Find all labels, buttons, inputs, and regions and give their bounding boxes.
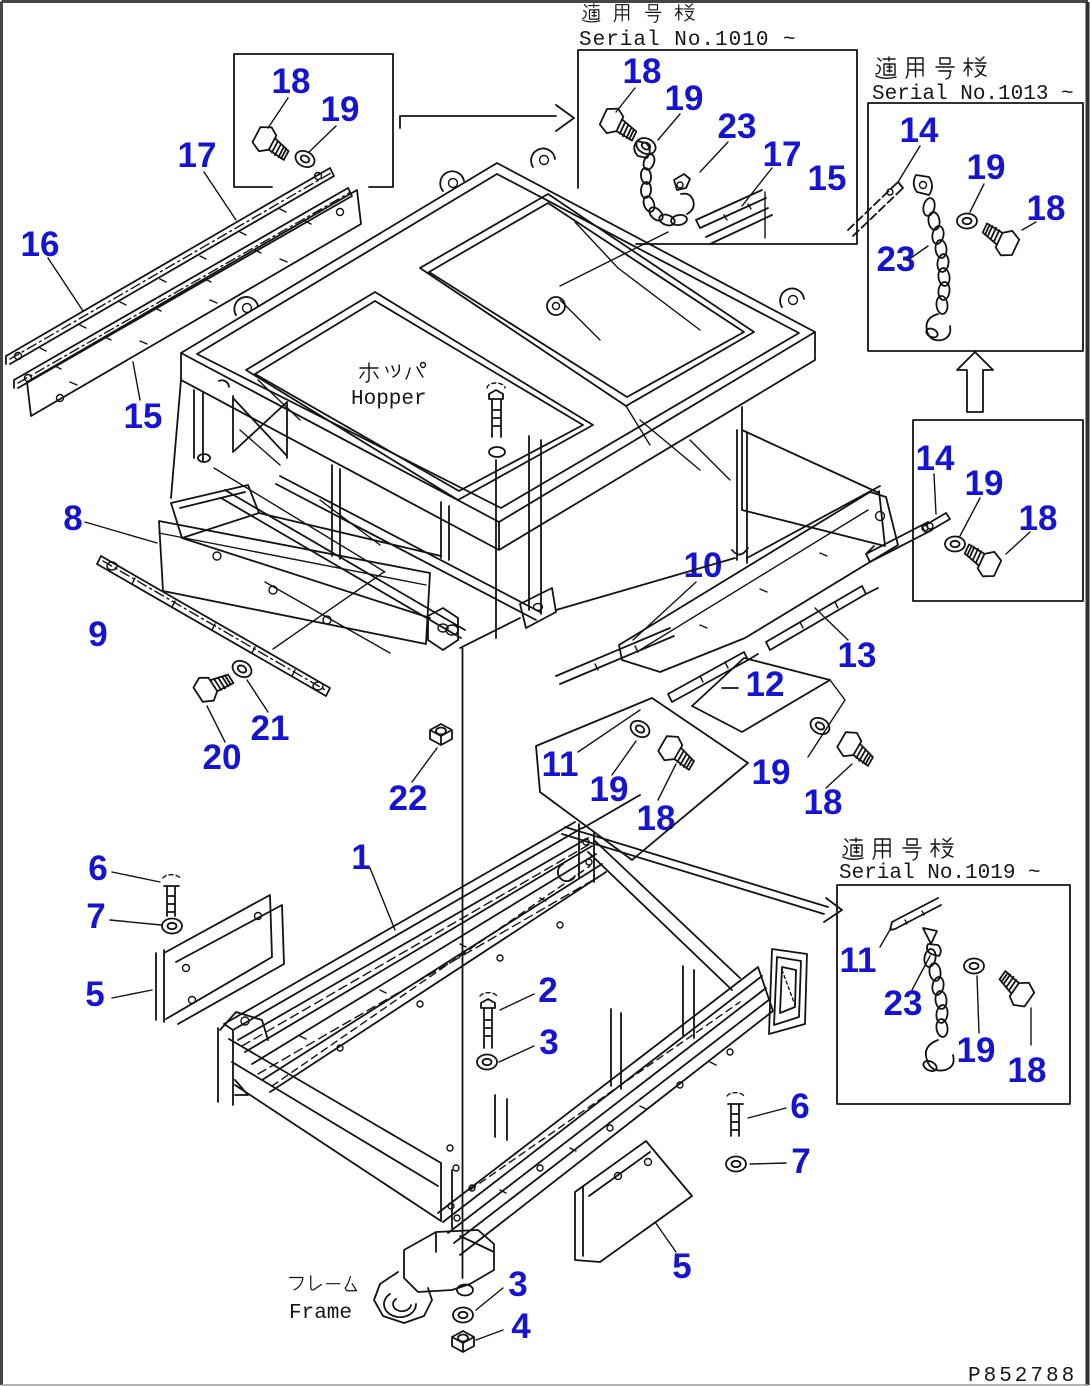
svg-text:16: 16 xyxy=(21,225,60,264)
svg-text:18: 18 xyxy=(804,783,843,822)
svg-text:22: 22 xyxy=(389,779,428,818)
svg-text:7: 7 xyxy=(791,1142,810,1181)
svg-text:14: 14 xyxy=(900,111,939,150)
svg-text:19: 19 xyxy=(665,79,704,118)
svg-text:4: 4 xyxy=(511,1307,531,1346)
svg-text:18: 18 xyxy=(272,62,311,101)
svg-text:17: 17 xyxy=(763,135,802,174)
svg-text:15: 15 xyxy=(808,159,847,198)
svg-text:12: 12 xyxy=(746,665,785,704)
svg-text:5: 5 xyxy=(672,1247,691,1286)
svg-text:6: 6 xyxy=(88,849,107,888)
svg-text:Frame: Frame xyxy=(289,1302,352,1325)
svg-text:19: 19 xyxy=(965,464,1004,503)
svg-text:18: 18 xyxy=(1008,1051,1047,1090)
svg-text:3: 3 xyxy=(539,1023,558,1062)
svg-text:19: 19 xyxy=(957,1031,996,1070)
svg-text:19: 19 xyxy=(967,148,1006,187)
svg-text:17: 17 xyxy=(178,136,217,175)
svg-text:21: 21 xyxy=(251,709,290,748)
svg-text:19: 19 xyxy=(752,753,791,792)
svg-text:2: 2 xyxy=(538,971,557,1010)
svg-text:18: 18 xyxy=(637,799,676,838)
svg-text:20: 20 xyxy=(203,738,242,777)
svg-text:23: 23 xyxy=(718,107,757,146)
svg-text:18: 18 xyxy=(623,52,662,91)
svg-text:11: 11 xyxy=(542,745,579,784)
svg-text:18: 18 xyxy=(1027,189,1066,228)
svg-text:1: 1 xyxy=(351,838,370,877)
svg-text:14: 14 xyxy=(916,439,955,478)
svg-text:7: 7 xyxy=(86,897,105,936)
svg-text:11: 11 xyxy=(840,941,877,980)
svg-text:19: 19 xyxy=(321,90,360,129)
svg-text:9: 9 xyxy=(88,615,107,654)
svg-text:23: 23 xyxy=(884,984,923,1023)
svg-text:5: 5 xyxy=(85,975,104,1014)
svg-text:3: 3 xyxy=(508,1265,527,1304)
svg-text:P852788: P852788 xyxy=(968,1365,1077,1386)
svg-text:8: 8 xyxy=(63,499,82,538)
svg-text:6: 6 xyxy=(790,1087,809,1126)
svg-text:Hopper: Hopper xyxy=(351,388,427,411)
svg-text:10: 10 xyxy=(684,546,723,585)
svg-text:15: 15 xyxy=(124,397,163,436)
svg-text:19: 19 xyxy=(590,770,629,809)
svg-text:18: 18 xyxy=(1019,499,1058,538)
svg-text:Serial No.1019 ~: Serial No.1019 ~ xyxy=(839,862,1041,885)
svg-text:Serial No.1010 ~: Serial No.1010 ~ xyxy=(579,29,797,52)
svg-text:13: 13 xyxy=(838,636,877,675)
